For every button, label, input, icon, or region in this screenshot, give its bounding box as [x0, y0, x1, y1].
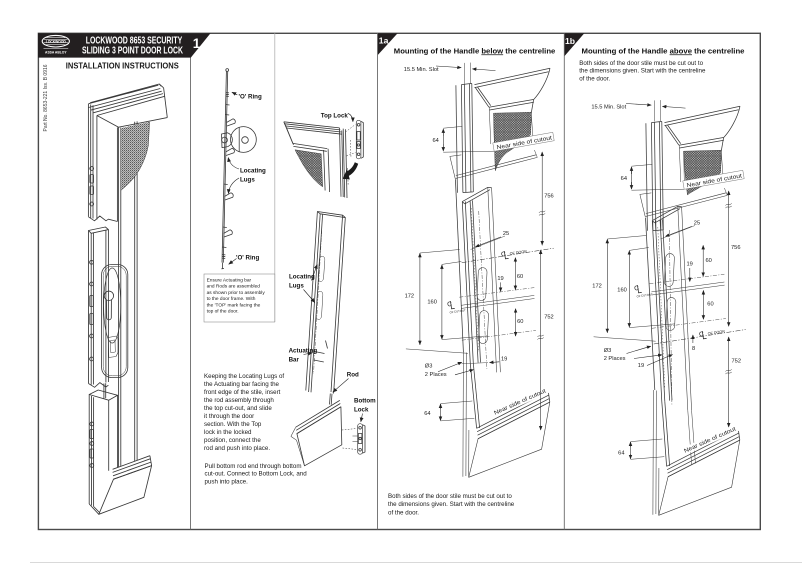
svg-text:cut-out. Connect to Bottom Loc: cut-out. Connect to Bottom Lock, and [205, 471, 308, 478]
svg-text:25: 25 [694, 220, 700, 226]
svg-text:the dimensions given. Start wi: the dimensions given. Start with the cen… [388, 501, 515, 508]
svg-text:rod and push into place.: rod and push into place. [204, 445, 270, 452]
svg-text:25: 25 [503, 231, 509, 237]
svg-text:Ø3: Ø3 [604, 348, 612, 354]
svg-text:64: 64 [618, 450, 624, 456]
svg-text:19: 19 [687, 262, 693, 268]
svg-text:Mounting of the Handle above t: Mounting of the Handle above the centrel… [582, 46, 745, 55]
svg-text:the Actuating bar facing the: the Actuating bar facing the [204, 381, 280, 388]
svg-text:Locating: Locating [289, 274, 315, 281]
svg-text:172: 172 [405, 294, 415, 300]
svg-text:Rod: Rod [347, 372, 359, 379]
svg-text:of the door.: of the door. [579, 75, 610, 82]
svg-text:Lock: Lock [354, 407, 369, 414]
svg-text:and Rods are assembled: and Rods are assembled [207, 284, 261, 290]
svg-text:of the door.: of the door. [388, 510, 419, 517]
svg-text:19: 19 [638, 363, 644, 369]
svg-text:it through the door: it through the door [204, 413, 254, 420]
svg-text:the 'TOP' mark facing the: the 'TOP' mark facing the [207, 302, 261, 308]
svg-text:the rod assembly through: the rod assembly through [204, 397, 274, 404]
svg-text:60: 60 [517, 274, 523, 280]
svg-text:Top Lock: Top Lock [321, 112, 349, 119]
svg-text:160: 160 [427, 300, 437, 306]
svg-text:Locating: Locating [240, 168, 266, 175]
svg-text:19: 19 [497, 276, 503, 282]
svg-text:lock in the locked: lock in the locked [204, 429, 252, 436]
svg-text:position, connect the: position, connect the [204, 437, 261, 444]
svg-text:2 Places: 2 Places [604, 356, 626, 362]
svg-text:Pull bottom rod end through bo: Pull bottom rod end through bottom [205, 463, 302, 470]
svg-text:Keeping the Locating Lugs of: Keeping the Locating Lugs of [204, 373, 284, 380]
svg-text:ASSA ABLOY: ASSA ABLOY [45, 50, 67, 55]
svg-text:as shown prior to assembly: as shown prior to assembly [207, 290, 266, 296]
svg-text:top of the door.: top of the door. [207, 309, 239, 315]
svg-text:Ensure Actuating bar: Ensure Actuating bar [207, 278, 252, 284]
svg-text:64: 64 [424, 411, 430, 417]
svg-text:752: 752 [732, 358, 742, 364]
svg-text:to the door frame. With: to the door frame. With [207, 296, 256, 302]
svg-text:Lugs: Lugs [289, 283, 304, 290]
svg-text:756: 756 [544, 194, 554, 200]
svg-text:Part No. 8653-221 Iss. B 091: Part No. 8653-221 Iss. B 0916 [43, 64, 49, 131]
svg-text:Ø3: Ø3 [425, 364, 433, 370]
svg-text:1b: 1b [565, 36, 575, 46]
svg-text:60: 60 [706, 258, 712, 264]
svg-text:Lugs: Lugs [240, 177, 255, 184]
svg-text:756: 756 [731, 245, 741, 251]
svg-text:1a: 1a [379, 36, 389, 46]
svg-text:'O' Ring: 'O' Ring [236, 254, 259, 261]
svg-text:64: 64 [432, 138, 438, 144]
svg-text:front edge of the stile, inser: front edge of the stile, insert [204, 389, 281, 396]
svg-text:'O' Ring: 'O' Ring [239, 93, 262, 100]
svg-text:push into place.: push into place. [205, 478, 249, 485]
svg-text:160: 160 [617, 288, 627, 294]
svg-text:INSTALLATION INSTRUCTIONS: INSTALLATION INSTRUCTIONS [66, 60, 179, 70]
svg-text:8: 8 [692, 346, 695, 352]
svg-text:SLIDING 3 POINT DOOR LOCK: SLIDING 3 POINT DOOR LOCK [82, 46, 183, 57]
svg-text:the top cut-out, and slide: the top cut-out, and slide [204, 405, 272, 412]
svg-text:15.5 Min. Slot: 15.5 Min. Slot [591, 105, 626, 111]
svg-text:Bar: Bar [289, 356, 300, 363]
svg-text:64: 64 [621, 176, 627, 182]
svg-text:Both sides of the door stile m: Both sides of the door stile must be cut… [579, 60, 703, 67]
svg-text:19: 19 [501, 357, 507, 363]
svg-text:Actuating: Actuating [289, 347, 318, 354]
svg-text:Bottom: Bottom [354, 398, 376, 405]
svg-text:1: 1 [193, 36, 201, 51]
svg-text:60: 60 [707, 301, 713, 307]
svg-text:Mounting of the Handle below t: Mounting of the Handle below the centrel… [394, 46, 556, 55]
svg-text:the dimensions given. Start wi: the dimensions given. Start with the cen… [579, 68, 706, 75]
svg-text:60: 60 [517, 319, 523, 325]
svg-text:Both sides of the door stile m: Both sides of the door stile must be cut… [388, 493, 512, 500]
svg-text:752: 752 [544, 315, 554, 321]
svg-text:2 Places: 2 Places [425, 372, 447, 378]
svg-text:172: 172 [592, 284, 602, 290]
svg-text:15.5 Min. Slot: 15.5 Min. Slot [404, 67, 439, 73]
svg-text:LOCKWOOD: LOCKWOOD [46, 39, 67, 44]
svg-text:section. With the Top: section. With the Top [204, 421, 262, 428]
